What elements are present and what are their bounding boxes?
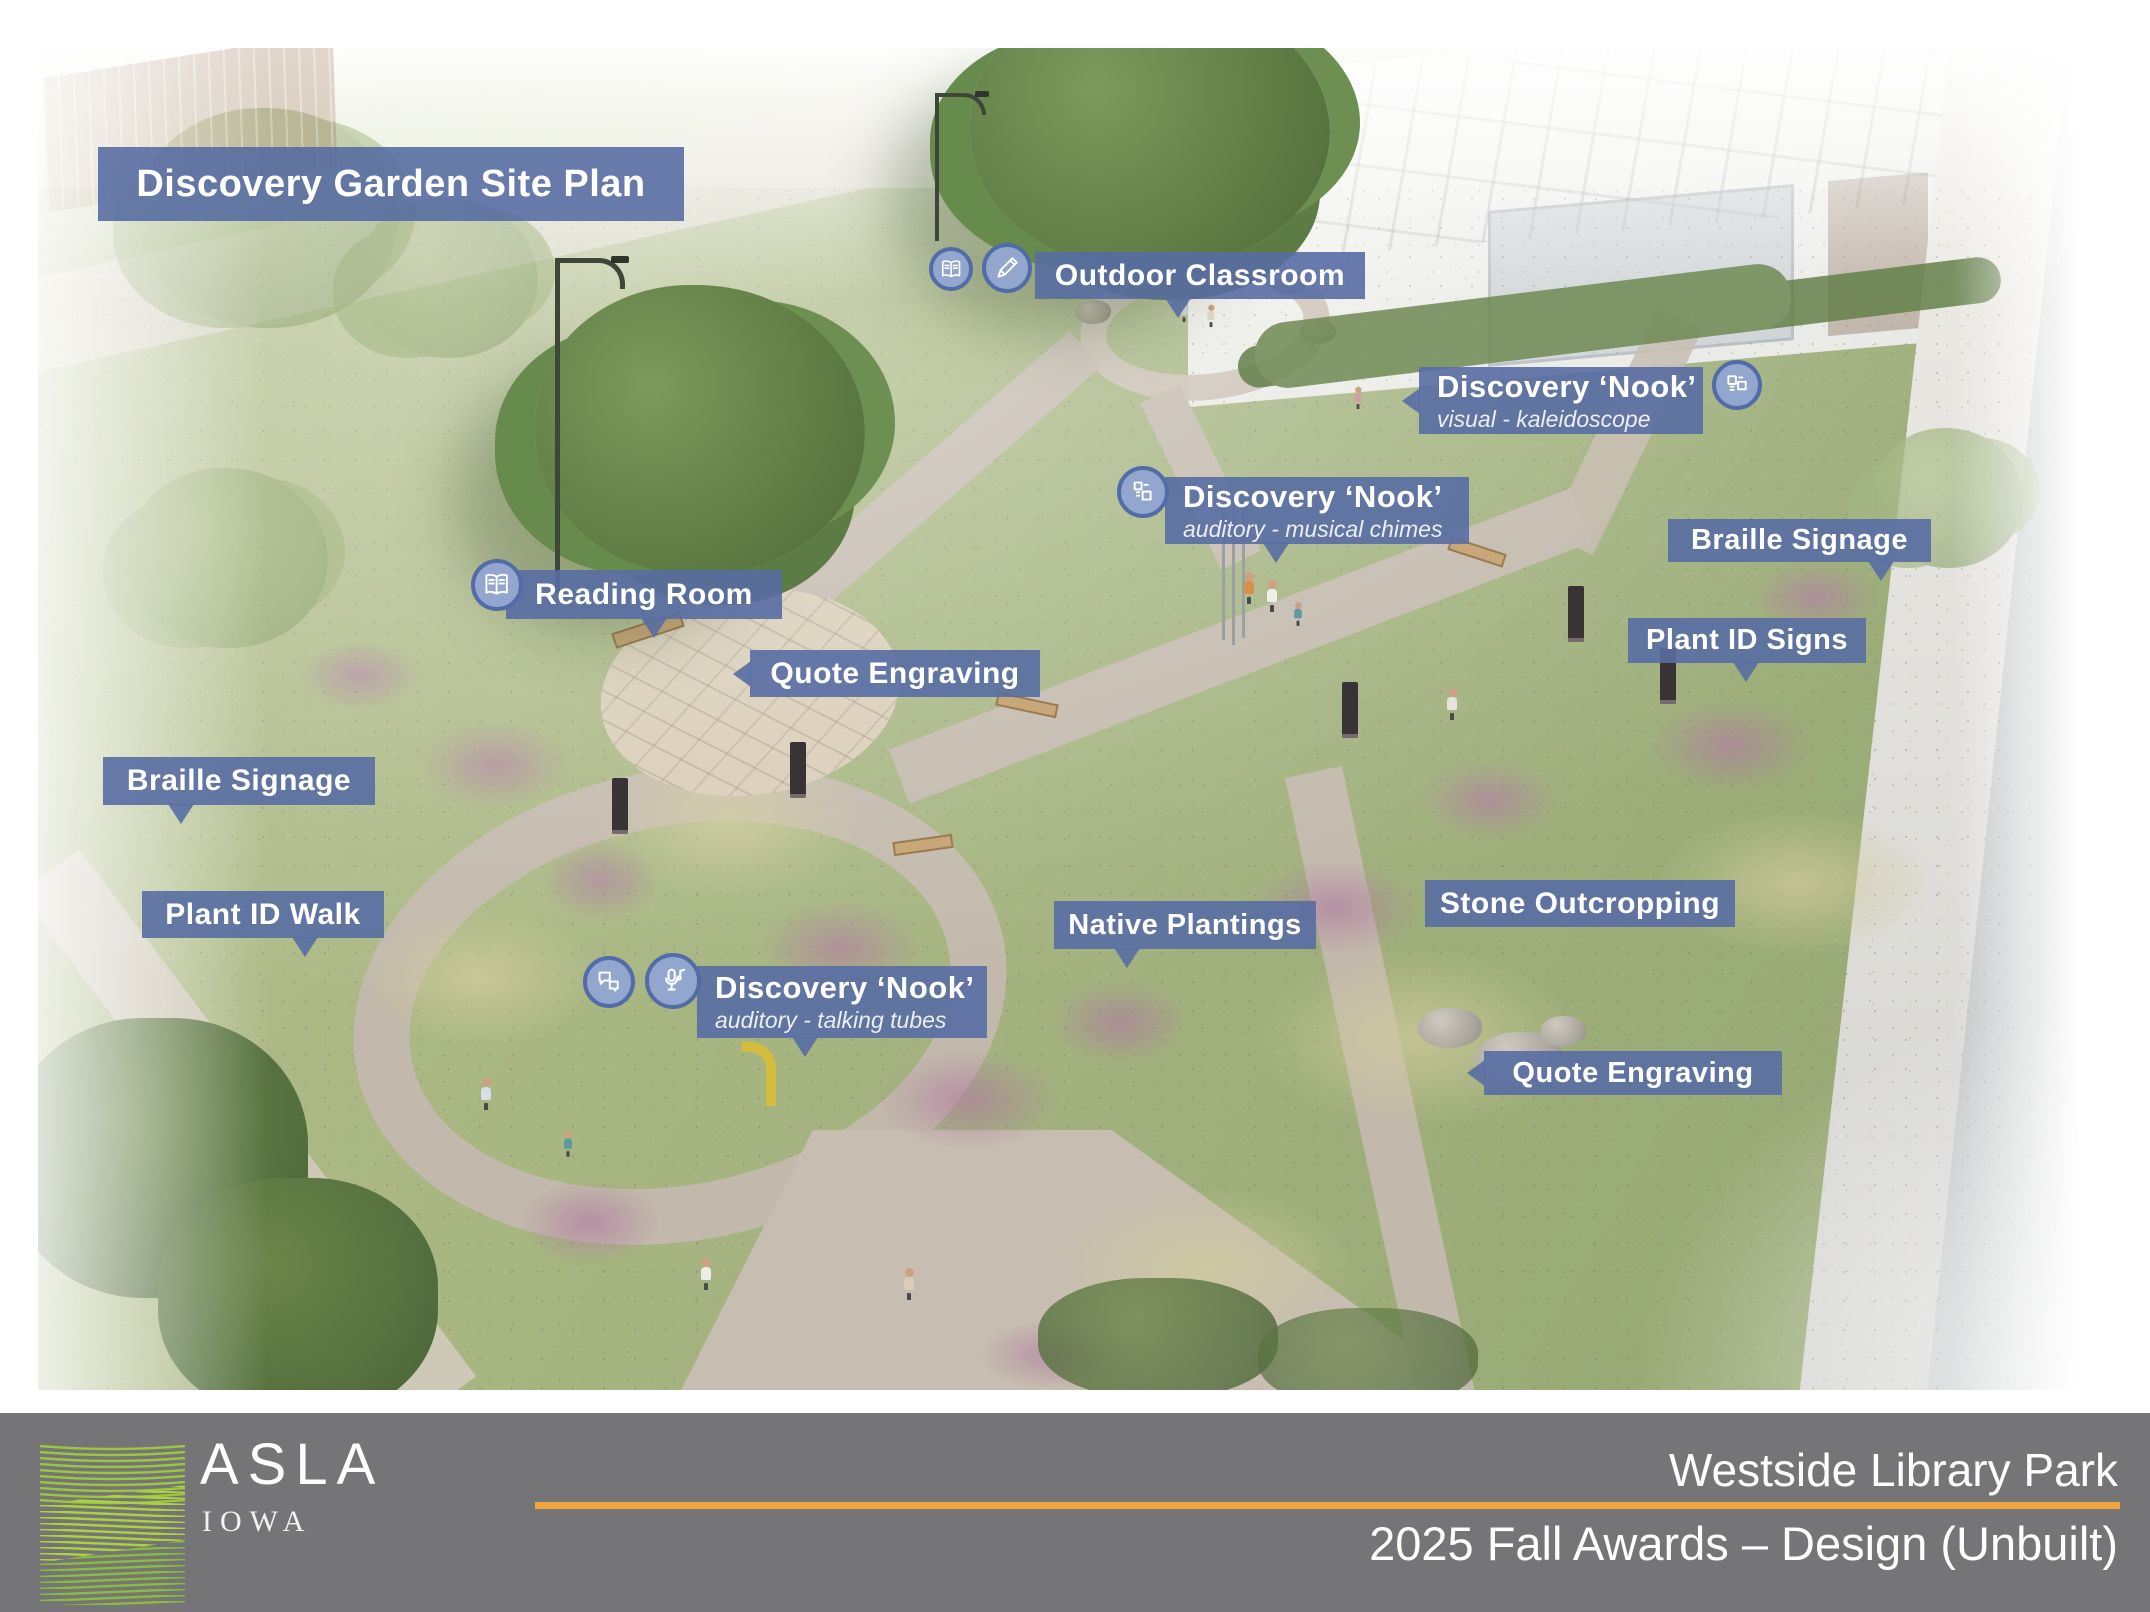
callout-plant-id-signs: Plant ID Signs xyxy=(1628,618,1866,663)
callout-sublabel: visual - kaleidoscope xyxy=(1437,406,1651,433)
boulder xyxy=(1418,1008,1482,1048)
chapter-wordmark: IOWA xyxy=(202,1505,312,1539)
person xyxy=(1207,305,1215,327)
footer-bar: ASLA IOWA Westside Library Park 2025 Fal… xyxy=(0,1413,2150,1612)
shrub-mass xyxy=(1258,1308,1478,1390)
pencil-icon xyxy=(982,243,1032,293)
shrub-mass xyxy=(1038,1278,1278,1390)
callout-quote-engraving-lower: Quote Engraving xyxy=(1484,1051,1782,1095)
callout-braille-signage-east: Braille Signage xyxy=(1668,519,1931,562)
asla-iowa-logo xyxy=(40,1445,185,1605)
site-rendering xyxy=(38,48,2112,1390)
callout-discovery-nook-visual: Discovery ‘Nook’ visual - kaleidoscope xyxy=(1419,367,1703,434)
accent-rule xyxy=(535,1502,2120,1509)
callout-pointer xyxy=(1263,543,1289,563)
callout-label: Native Plantings xyxy=(1068,909,1302,942)
white-fade-overlay xyxy=(38,48,268,1390)
slide-title-banner: Discovery Garden Site Plan xyxy=(98,147,684,221)
callout-pointer xyxy=(1114,948,1140,968)
person xyxy=(1446,688,1458,719)
callout-label: Quote Engraving xyxy=(770,657,1019,691)
callout-label: Discovery ‘Nook’ xyxy=(1183,479,1443,515)
callout-stone-outcropping: Stone Outcropping xyxy=(1425,880,1735,927)
callout-label: Reading Room xyxy=(535,578,753,612)
slide-title: Discovery Garden Site Plan xyxy=(136,163,645,206)
person xyxy=(563,1131,573,1156)
callout-label: Quote Engraving xyxy=(1512,1057,1753,1090)
callout-label: Discovery ‘Nook’ xyxy=(1437,369,1697,405)
book-icon xyxy=(929,247,973,291)
plant-id-sign-post xyxy=(1342,682,1358,738)
street-lamp xyxy=(555,258,635,598)
white-fade-overlay xyxy=(1592,970,2112,1390)
boulder xyxy=(1075,300,1111,324)
callout-label: Plant ID Walk xyxy=(165,898,360,932)
person xyxy=(1243,572,1255,603)
callout-native-plantings: Native Plantings xyxy=(1054,901,1316,949)
callout-pointer xyxy=(168,804,194,824)
person xyxy=(1354,387,1362,409)
plant-id-sign-post xyxy=(1568,586,1584,642)
person xyxy=(903,1268,915,1299)
callout-label: Discovery ‘Nook’ xyxy=(715,970,975,1006)
callout-pointer xyxy=(1165,298,1191,318)
lamp-pole xyxy=(555,258,560,593)
project-title: Westside Library Park xyxy=(1669,1443,2118,1497)
callout-braille-signage-west: Braille Signage xyxy=(103,757,375,805)
speech-bubbles-icon xyxy=(583,956,635,1008)
person xyxy=(700,1258,712,1289)
tree xyxy=(358,198,538,358)
lamp-pole xyxy=(935,93,939,241)
callout-pointer xyxy=(1402,388,1420,414)
callout-pointer xyxy=(292,937,318,957)
callout-sublabel: auditory - talking tubes xyxy=(715,1007,946,1034)
event-title: 2025 Fall Awards – Design (Unbuilt) xyxy=(1369,1516,2118,1571)
street-lamp xyxy=(935,93,995,243)
callout-pointer xyxy=(1733,662,1759,682)
callout-discovery-nook-chimes: Discovery ‘Nook’ auditory - musical chim… xyxy=(1165,477,1469,544)
talking-tube xyxy=(742,1042,776,1106)
org-wordmark: ASLA xyxy=(200,1431,384,1498)
person xyxy=(1294,602,1303,625)
callout-discovery-nook-talking: Discovery ‘Nook’ auditory - talking tube… xyxy=(697,966,987,1038)
person xyxy=(1266,580,1278,611)
callout-label: Braille Signage xyxy=(1691,524,1908,557)
callout-label: Braille Signage xyxy=(127,764,351,798)
callout-quote-engraving-upper: Quote Engraving xyxy=(750,650,1040,697)
callout-pointer xyxy=(733,661,751,687)
callout-plant-id-walk: Plant ID Walk xyxy=(142,891,384,938)
book-icon xyxy=(471,559,523,611)
boulder xyxy=(1540,1016,1586,1046)
plant-id-sign-post xyxy=(612,778,628,834)
plant-id-sign-post xyxy=(790,742,806,798)
chimes-icon xyxy=(1117,466,1169,518)
lamp-head xyxy=(611,256,629,263)
callout-pointer xyxy=(641,618,667,638)
callout-pointer xyxy=(1467,1060,1485,1086)
callout-outdoor-classroom: Outdoor Classroom xyxy=(1035,252,1365,299)
kaleidoscope-icon xyxy=(1712,360,1762,410)
award-slide: Discovery Garden Site Plan Outdoor Class… xyxy=(0,0,2150,1612)
callout-label: Stone Outcropping xyxy=(1440,887,1720,921)
callout-label: Outdoor Classroom xyxy=(1055,259,1345,293)
callout-pointer xyxy=(1868,561,1894,581)
callout-reading-room: Reading Room xyxy=(506,570,782,619)
person xyxy=(480,1078,492,1109)
callout-label: Plant ID Signs xyxy=(1646,624,1848,657)
microphone-music-icon xyxy=(645,953,701,1009)
lamp-head xyxy=(975,91,989,97)
callout-pointer xyxy=(792,1037,818,1057)
callout-sublabel: auditory - musical chimes xyxy=(1183,516,1442,543)
